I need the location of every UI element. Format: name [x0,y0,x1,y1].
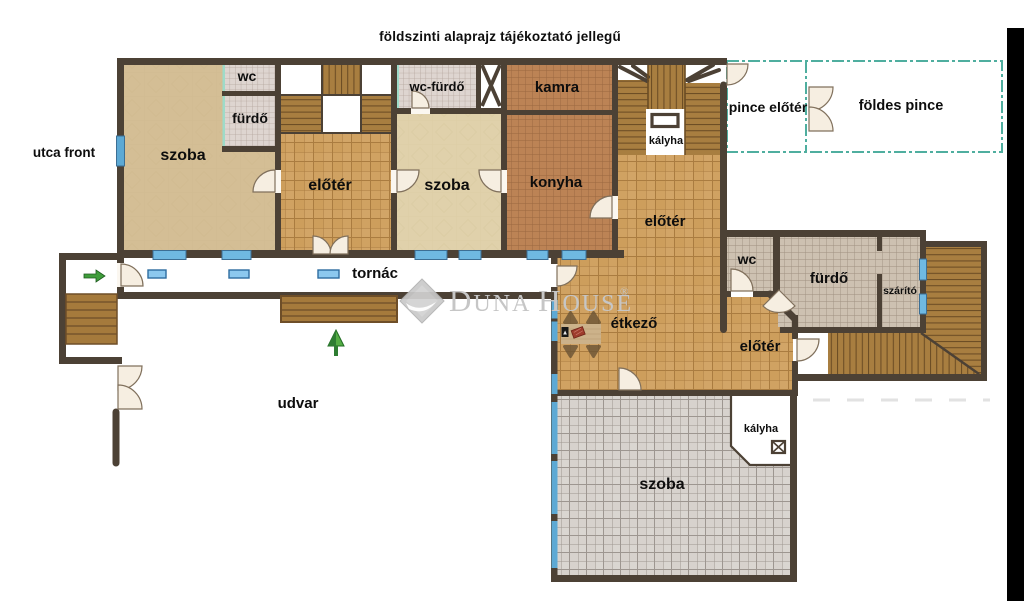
svg-text:fürdő: fürdő [232,110,268,126]
svg-text:tornác: tornác [352,265,398,282]
svg-text:kályha: kályha [744,423,779,435]
svg-text:előtér: előtér [308,177,352,194]
svg-text:szoba: szoba [424,177,469,194]
svg-text:fürdő: fürdő [810,270,848,287]
svg-text:szoba: szoba [160,147,205,164]
svg-text:konyha: konyha [530,174,583,191]
svg-text:utca front: utca front [33,145,96,160]
svg-text:előtér: előtér [740,338,781,355]
svg-text:szárító: szárító [883,285,917,297]
svg-text:udvar: udvar [278,395,319,412]
svg-text:földes pince: földes pince [859,98,944,114]
svg-text:wc: wc [737,251,757,267]
svg-text:®: ® [620,286,628,298]
svg-text:étkező: étkező [611,315,658,332]
svg-text:wc: wc [237,68,257,84]
svg-text:földszinti alaprajz tájékoztat: földszinti alaprajz tájékoztató jellegű [379,29,621,44]
svg-text:szoba: szoba [639,476,684,493]
svg-text:pince előtér: pince előtér [729,99,808,115]
svg-text:kályha: kályha [649,135,684,147]
svg-text:wc-fürdő: wc-fürdő [409,79,465,94]
svg-text:kamra: kamra [535,79,580,96]
svg-text:előtér: előtér [645,213,686,230]
